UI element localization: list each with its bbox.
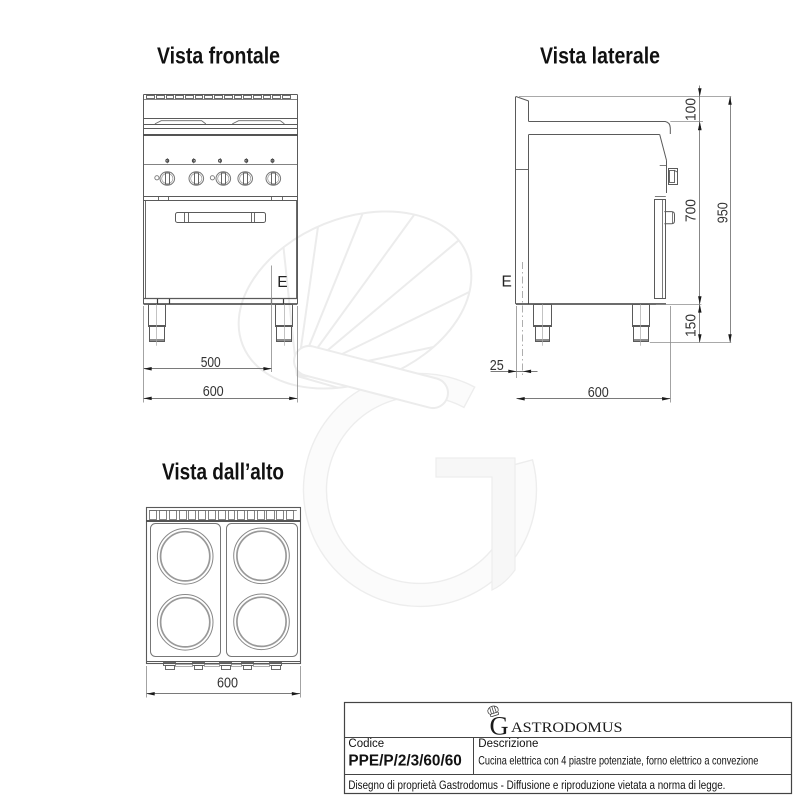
svg-text:PPE/P/2/3/60/60: PPE/P/2/3/60/60 xyxy=(348,752,461,769)
svg-text:Cucina elettrica con 4 piastre: Cucina elettrica con 4 piastre potenziat… xyxy=(478,754,758,768)
svg-text:E: E xyxy=(277,274,287,291)
svg-text:950: 950 xyxy=(714,202,731,223)
svg-text:Codice: Codice xyxy=(348,738,384,750)
svg-text:700: 700 xyxy=(683,199,700,222)
svg-text:G: G xyxy=(490,711,509,741)
svg-text:E: E xyxy=(502,274,512,291)
svg-text:500: 500 xyxy=(201,354,221,371)
svg-text:25: 25 xyxy=(490,357,504,374)
svg-text:Vista dall’alto: Vista dall’alto xyxy=(162,459,284,485)
svg-text:Disegno di proprietà Gastrodom: Disegno di proprietà Gastrodomus - Diffu… xyxy=(348,778,725,792)
svg-text:Vista frontale: Vista frontale xyxy=(157,43,280,69)
svg-text:Descrizione: Descrizione xyxy=(478,738,538,750)
svg-text:600: 600 xyxy=(217,675,238,692)
svg-text:ASTRODOMUS: ASTRODOMUS xyxy=(511,720,623,736)
svg-text:Vista laterale: Vista laterale xyxy=(540,43,660,69)
svg-text:100: 100 xyxy=(683,98,700,121)
svg-text:150: 150 xyxy=(683,314,700,337)
svg-text:600: 600 xyxy=(588,384,609,401)
svg-text:600: 600 xyxy=(203,383,224,400)
